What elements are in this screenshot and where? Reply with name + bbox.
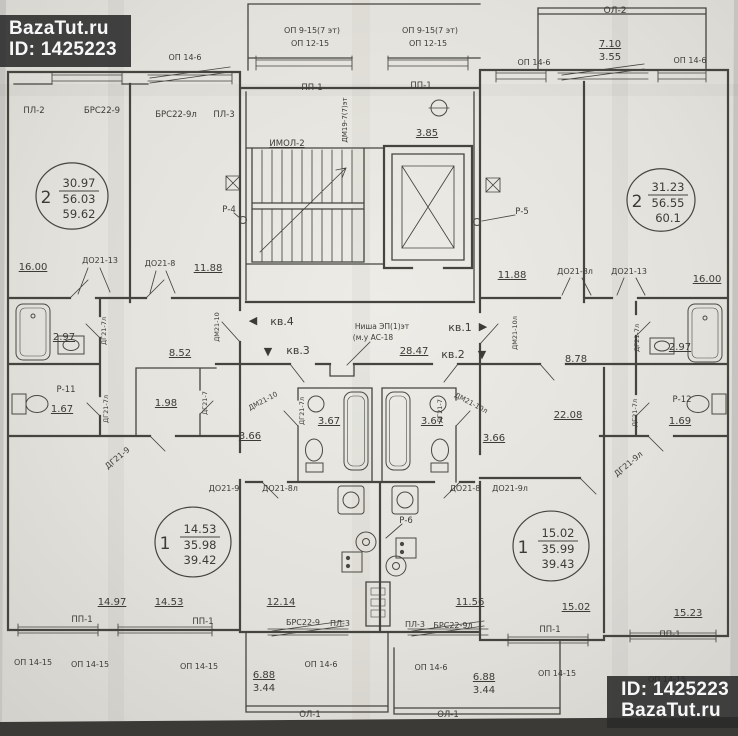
watermark-site: BazaTut.ru	[9, 19, 117, 40]
plan-label: ДО21-8л	[262, 484, 298, 493]
plan-label: БРС22-9л	[155, 110, 197, 120]
plan-label: ПЛ-3	[405, 620, 425, 629]
plan-label: 2.97	[669, 342, 691, 353]
plan-label: ДМ19-7(7)эт	[341, 97, 349, 142]
plan-label: ОП 9-15(7 эт)	[284, 26, 340, 35]
stamp-rooms: 2	[632, 192, 643, 212]
plan-label: ДГ21-7	[201, 391, 209, 415]
plan-label: ДГ21-7л	[631, 399, 639, 427]
stamp-total-area: 39.42	[184, 553, 217, 567]
plan-label: 8.78	[565, 354, 587, 365]
plan-label: ДО21-13	[82, 256, 118, 265]
plan-label: ОП 14-15	[71, 660, 109, 669]
direction-arrow: ▶	[479, 320, 488, 333]
plan-label: 11.56	[456, 597, 485, 608]
plan-label: Ниша ЭП(1)эт	[355, 322, 410, 331]
plan-label: ПП-1	[410, 81, 431, 91]
plan-label: Р-6	[399, 516, 413, 526]
plan-label: ОП 12-15	[409, 39, 447, 48]
plan-label: Р-12	[672, 395, 691, 405]
stamp-usable-area: 56.55	[652, 196, 685, 210]
stamp-total-area: 60.1	[655, 211, 681, 225]
stamp-usable-area: 35.99	[542, 542, 575, 556]
plan-label: ОП 14-6	[304, 660, 337, 669]
plan-label: 3.55	[599, 52, 621, 63]
plan-label: 11.88	[194, 263, 223, 274]
plan-label: 28.47	[400, 346, 429, 357]
floorplan-photo: 230.9756.0359.62231.2356.5560.1114.5335.…	[0, 0, 738, 736]
stamp-living-area: 30.97	[63, 176, 96, 190]
plan-label: кв.3	[286, 344, 310, 357]
plan-label: ПП-1	[301, 83, 322, 93]
plan-label: 3.66	[239, 431, 261, 442]
plan-label: 3.66	[483, 433, 505, 444]
plan-label: 6.88	[253, 670, 275, 681]
plan-label: ДГ21-7	[436, 399, 444, 423]
plan-label: ОП 14-15	[14, 658, 52, 667]
plan-label: ПЛ-3	[330, 619, 350, 628]
plan-label: 3.44	[473, 685, 495, 696]
plan-label: ОП 9-15(7 эт)	[402, 26, 458, 35]
plan-label: Р-5	[515, 207, 529, 217]
plan-label: 15.23	[674, 608, 703, 619]
plan-label: 15.02	[562, 602, 591, 613]
plan-label: ОП 14-6	[673, 56, 706, 65]
plan-label: 7.10	[599, 39, 621, 50]
plan-label: ПП-1	[192, 617, 213, 627]
plan-label: 8.52	[169, 348, 191, 359]
plan-label: ДМ21-10л	[511, 316, 519, 350]
plan-label: (м.у АС-18	[353, 333, 394, 342]
plan-label: ДГ21-7л	[633, 324, 641, 352]
stamp-rooms: 1	[160, 534, 171, 554]
watermark-id: ID: 1425223	[9, 40, 117, 61]
plan-label: 16.00	[19, 262, 48, 273]
plan-label: ПП-1	[71, 615, 92, 625]
plan-label: ДО21-8	[450, 484, 481, 493]
plan-label: ОП 14-15	[538, 669, 576, 678]
plan-label: Р-4	[222, 205, 236, 215]
plan-label: 6.88	[473, 672, 495, 683]
plan-label: 12.14	[267, 597, 296, 608]
plan-label: ОП 14-6	[168, 53, 201, 62]
plan-label: ОЛ-1	[437, 710, 459, 720]
plan-label: 3.85	[416, 128, 438, 139]
plan-label: ДГ21-7л	[100, 317, 108, 345]
plan-label: ОП 12-15	[291, 39, 329, 48]
plan-label: ДГ21-7л	[102, 395, 110, 423]
stamp-usable-area: 35.98	[184, 538, 217, 552]
stamp-rooms: 2	[41, 188, 52, 208]
plan-label: Р-11	[56, 385, 75, 395]
stamp-living-area: 15.02	[542, 526, 575, 540]
plan-label: ДО21-8	[145, 259, 176, 268]
stamp-total-area: 39.43	[542, 557, 575, 571]
plan-label: ДМ21-10	[213, 312, 221, 342]
stamp-living-area: 14.53	[184, 522, 217, 536]
plan-label: ПЛ-3	[213, 110, 234, 120]
plan-label: ПЛ-2	[23, 106, 44, 116]
plan-label: 16.00	[693, 274, 722, 285]
stamp-rooms: 1	[518, 538, 529, 558]
plan-label: ОЛ-2	[604, 6, 627, 16]
plan-label: ПП-1	[659, 630, 680, 640]
plan-label: 14.53	[155, 597, 184, 608]
plan-label: 3.67	[318, 416, 340, 427]
plan-label: 1.67	[51, 404, 73, 415]
plan-label: ОП 14-6	[517, 58, 550, 67]
watermark-site: BazaTut.ru	[621, 701, 729, 722]
plan-label: кв.2	[441, 348, 465, 361]
plan-label: 1.98	[155, 398, 177, 409]
plan-label: 3.44	[253, 683, 275, 694]
plan-label: БРС22-9	[84, 106, 120, 116]
plan-label: 1.69	[669, 416, 691, 427]
plan-label: ПП-1	[539, 625, 560, 635]
plan-label: БРС22-9л	[433, 621, 472, 630]
plan-label: кв.1	[448, 321, 472, 334]
direction-arrow: ◀	[249, 314, 258, 327]
floorplan-drawing: 230.9756.0359.62231.2356.5560.1114.5335.…	[0, 0, 738, 736]
plan-label: кв.4	[270, 315, 294, 328]
plan-label: ДГ21-7л	[298, 397, 306, 425]
plan-label: ИМОЛ-2	[269, 139, 304, 149]
direction-arrow: ▼	[478, 348, 487, 361]
plan-label: 22.08	[554, 410, 583, 421]
plan-label: 11.88	[498, 270, 527, 281]
watermark-top-left: BazaTut.ru ID: 1425223	[0, 15, 131, 67]
watermark-bottom-right: ID: 1425223 BazaTut.ru	[607, 676, 738, 728]
plan-label: БРС22-9	[286, 618, 320, 627]
plan-label: ДО21-9л	[492, 484, 528, 493]
stamp-usable-area: 56.03	[63, 192, 96, 206]
stamp-living-area: 31.23	[652, 180, 685, 194]
plan-label: ДО21-13	[611, 267, 647, 276]
plan-label: ОП 14-6	[414, 663, 447, 672]
plan-label: 14.97	[98, 597, 127, 608]
direction-arrow: ▼	[264, 345, 273, 358]
plan-label: ДО21-8л	[557, 267, 593, 276]
plan-label: ДО21-9	[209, 484, 240, 493]
plan-label: ОЛ-1	[299, 710, 321, 720]
watermark-id: ID: 1425223	[621, 680, 729, 701]
plan-label: 2.97	[53, 332, 75, 343]
stamp-total-area: 59.62	[63, 207, 96, 221]
plan-label: ОП 14-15	[180, 662, 218, 671]
